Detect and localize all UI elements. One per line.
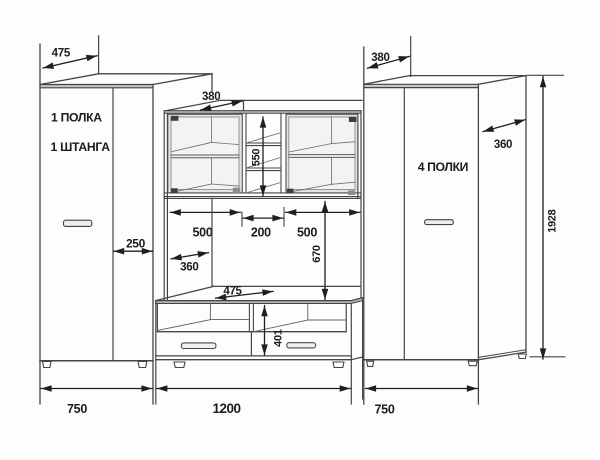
svg-text:1 ПОЛКА: 1 ПОЛКА <box>51 110 102 124</box>
svg-text:360: 360 <box>180 262 198 274</box>
svg-text:380: 380 <box>202 91 220 103</box>
svg-text:360: 360 <box>494 139 512 151</box>
svg-text:1 ШТАНГА: 1 ШТАНГА <box>51 140 111 154</box>
svg-text:550: 550 <box>250 149 262 167</box>
svg-text:1928: 1928 <box>546 209 558 232</box>
svg-text:200: 200 <box>251 225 271 239</box>
svg-text:500: 500 <box>297 225 317 239</box>
svg-text:1200: 1200 <box>212 401 240 416</box>
svg-text:475: 475 <box>223 286 242 298</box>
svg-text:750: 750 <box>67 402 87 416</box>
svg-text:401: 401 <box>273 329 285 347</box>
svg-text:475: 475 <box>52 47 71 59</box>
svg-text:670: 670 <box>311 245 323 263</box>
svg-text:500: 500 <box>193 225 213 239</box>
svg-text:380: 380 <box>371 52 389 64</box>
svg-text:4 ПОЛКИ: 4 ПОЛКИ <box>418 160 468 174</box>
svg-text:750: 750 <box>375 402 395 416</box>
svg-text:250: 250 <box>126 236 146 250</box>
